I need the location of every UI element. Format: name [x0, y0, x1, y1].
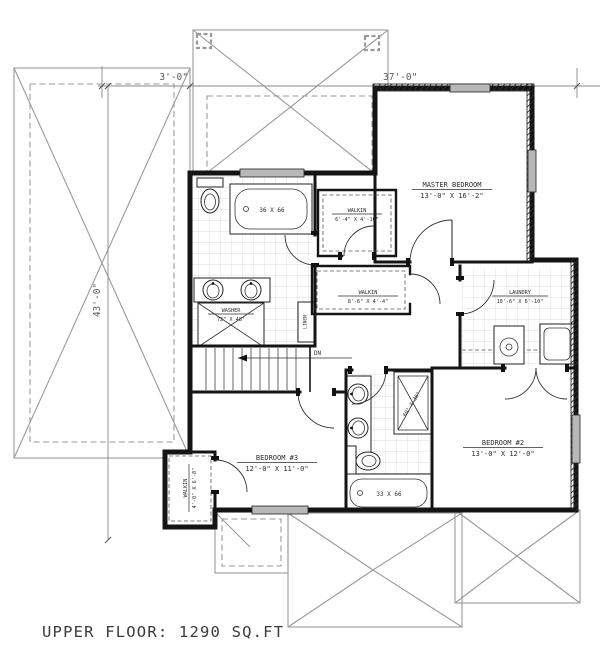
walkin-a-size: 6'-4" X 4'-10": [335, 217, 379, 223]
bedroom3-size: 12'-0" X 11'-0": [245, 465, 308, 473]
window-master-right: [528, 150, 536, 192]
floor-plan-drawing: 3'-0" 37'-0" 43'-0": [0, 0, 613, 664]
plan-title: UPPER FLOOR: 1290 SQ.FT: [42, 623, 284, 641]
lower-roof-outlines: [215, 510, 580, 627]
window-bath-top: [240, 169, 304, 177]
laundry-label: LAUNDRY: [509, 290, 532, 296]
washer-label: WASHER: [222, 308, 242, 314]
washer-size: 72" X 48": [217, 317, 245, 323]
bedroom2-size: 13'-0" X 12'-0": [471, 450, 534, 458]
bedroom3-label: BEDROOM #3: [256, 454, 298, 462]
master-bedroom-label: MASTER BEDROOM: [422, 181, 481, 189]
linen-label: LINEN: [303, 315, 309, 329]
laundry-washer: [494, 326, 524, 364]
master-bedroom-size: 13'-0" X 16'-2": [420, 192, 483, 200]
walkin-b-size: 8'-6" X 4'-4": [348, 299, 389, 305]
dimension-depth: 43'-0": [92, 283, 103, 317]
roof-vent-left: [197, 34, 211, 48]
master-tub-size: 36 X 66: [259, 207, 285, 214]
top-roof-outline: [193, 30, 388, 184]
floor-plan-page: 3'-0" 37'-0" 43'-0": [0, 0, 613, 664]
walkin-bedroom3-size: 4'-0" X 6'-8": [192, 468, 198, 509]
bedroom2-label: BEDROOM #2: [482, 439, 524, 447]
dimension-width: 37'-0": [383, 72, 417, 83]
walkin-b-label: WALKIN: [359, 290, 378, 296]
walkin-bedroom3-label: WALKIN: [183, 479, 189, 498]
window-master-top: [450, 84, 490, 92]
toilet-tank: [347, 446, 356, 476]
laundry-size: 10'-6" X 6'-10": [497, 299, 544, 305]
walkin-a-label: WALKIN: [348, 208, 367, 214]
window-bedroom3-bottom: [252, 506, 308, 514]
left-roof-outline: [14, 68, 190, 458]
window-bedroom2-right: [572, 415, 580, 463]
shared-tub-size: 33 X 66: [376, 491, 402, 498]
toilet-icon: [201, 189, 219, 213]
stairs-dn-label: DN: [314, 351, 321, 357]
toilet-tank: [197, 178, 223, 187]
hatched-wall-right: [571, 258, 578, 512]
dimension-overhang: 3'-0": [159, 72, 188, 83]
